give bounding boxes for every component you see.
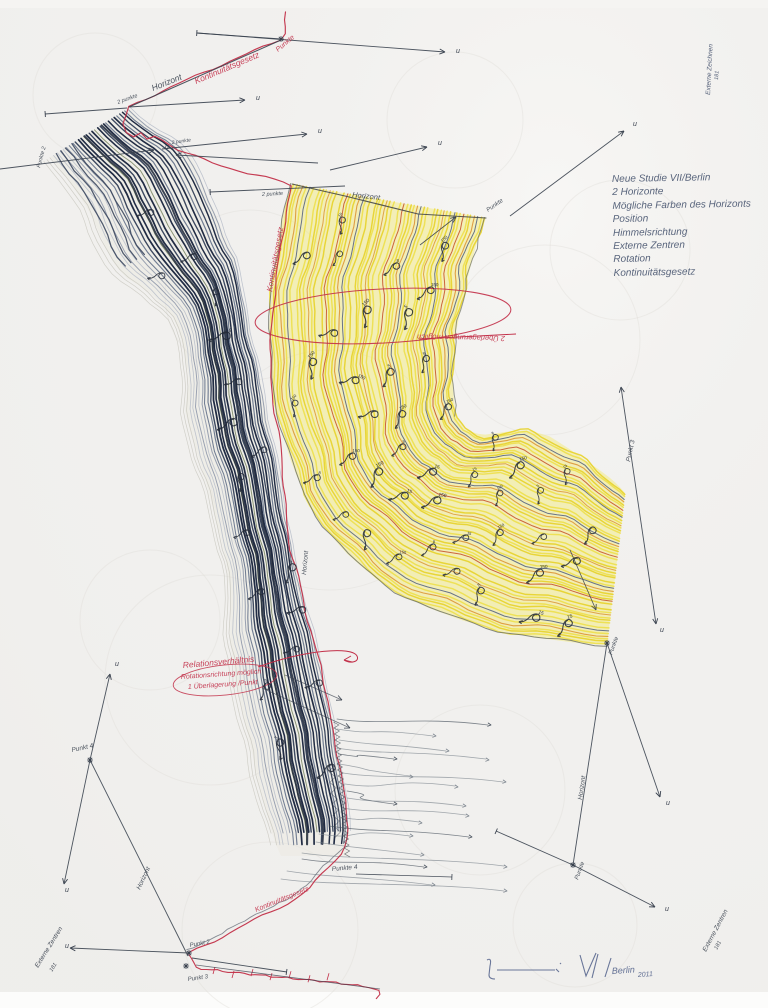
svg-text:u: u — [438, 140, 442, 147]
svg-text:u: u — [65, 887, 69, 894]
svg-text:u: u — [666, 800, 670, 807]
svg-text:Himmelsrichtung: Himmelsrichtung — [613, 227, 688, 239]
svg-text:u: u — [456, 48, 460, 55]
svg-text:Rotation: Rotation — [613, 253, 651, 265]
svg-text:Kontinuitätsgesetz: Kontinuitätsgesetz — [614, 267, 696, 279]
svg-text:2011: 2011 — [637, 971, 654, 979]
svg-text:150: 150 — [540, 564, 548, 569]
svg-text:u: u — [633, 121, 637, 128]
svg-text:Externe Zentren: Externe Zentren — [613, 240, 685, 252]
svg-text:Neue Studie VII/Berlin: Neue Studie VII/Berlin — [612, 172, 711, 185]
svg-text:2 Horizonte: 2 Horizonte — [611, 186, 664, 198]
svg-text:150: 150 — [353, 448, 361, 453]
svg-text:u: u — [256, 95, 260, 102]
svg-text:u: u — [65, 943, 69, 950]
svg-text:Berlin: Berlin — [611, 964, 635, 976]
svg-text:2 Überlagerungen möglich: 2 Überlagerungen möglich — [417, 332, 506, 343]
svg-text:u: u — [115, 661, 119, 668]
svg-text:u: u — [665, 906, 669, 913]
svg-text:181: 181 — [714, 71, 720, 80]
svg-text:u: u — [660, 627, 664, 634]
svg-text:u: u — [165, 144, 169, 151]
svg-text:150: 150 — [431, 282, 439, 287]
svg-text:Position: Position — [613, 213, 649, 225]
svg-text:u: u — [318, 128, 322, 135]
svg-text:2 punkte: 2 punkte — [261, 191, 283, 198]
